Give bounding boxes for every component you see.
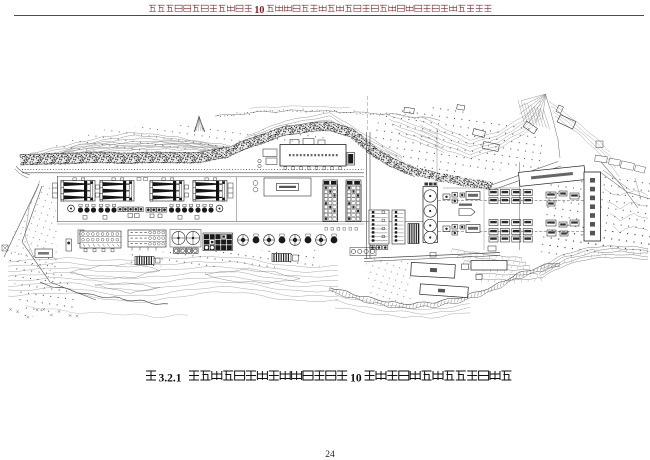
svg-text:24: 24 — [325, 450, 335, 460]
svg-text:10: 10 — [350, 373, 362, 385]
svg-text:10: 10 — [254, 5, 264, 16]
svg-text:3.2.1: 3.2.1 — [159, 373, 182, 385]
